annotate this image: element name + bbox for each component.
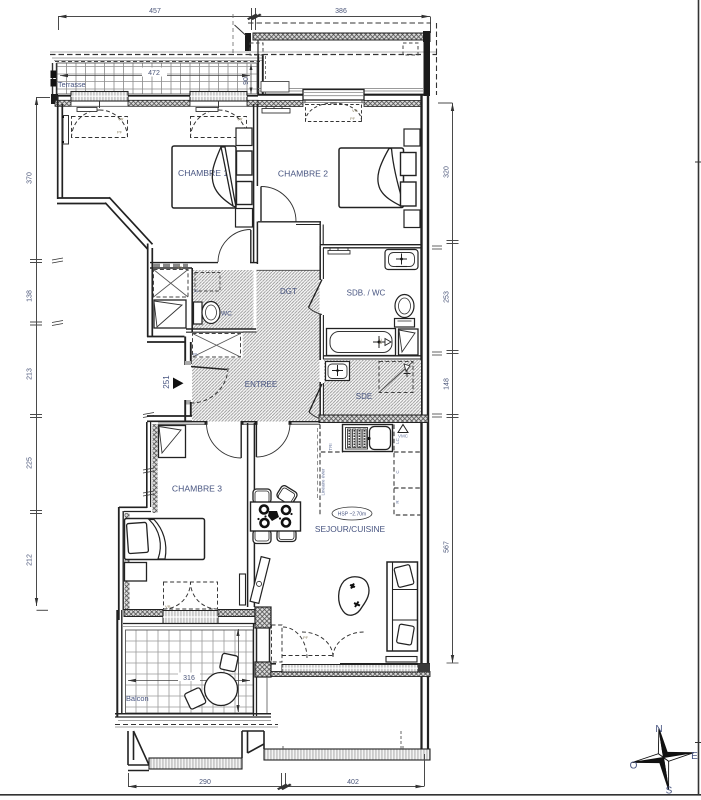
svg-text:386: 386 bbox=[335, 8, 347, 15]
svg-text:O: O bbox=[630, 761, 638, 772]
svg-text:VR: VR bbox=[118, 117, 124, 122]
svg-text:PF: PF bbox=[303, 635, 309, 640]
svg-text:VR: VR bbox=[237, 117, 243, 122]
svg-text:148: 148 bbox=[444, 378, 451, 390]
svg-text:EC: EC bbox=[378, 338, 383, 344]
svg-text:370: 370 bbox=[27, 172, 34, 184]
svg-text:253: 253 bbox=[444, 291, 451, 303]
svg-text:213: 213 bbox=[27, 368, 34, 380]
svg-text:S: S bbox=[666, 786, 673, 797]
svg-text:SDE: SDE bbox=[356, 392, 372, 401]
svg-text:567: 567 bbox=[444, 541, 451, 553]
svg-text:Balcon: Balcon bbox=[126, 694, 149, 703]
svg-text:251: 251 bbox=[162, 375, 171, 389]
svg-text:HSP ~2.70m: HSP ~2.70m bbox=[338, 512, 366, 518]
svg-text:320: 320 bbox=[444, 166, 451, 178]
svg-text:CHAMBRE 1: CHAMBRE 1 bbox=[178, 168, 228, 178]
svg-text:212: 212 bbox=[27, 554, 34, 566]
svg-text:DGT: DGT bbox=[280, 287, 297, 296]
svg-text:Terrasse: Terrasse bbox=[58, 80, 86, 89]
svg-text:Linéaire évier: Linéaire évier bbox=[321, 468, 326, 496]
svg-text:TRI: TRI bbox=[328, 443, 333, 450]
svg-text:E: E bbox=[691, 751, 698, 762]
svg-text:WC: WC bbox=[221, 311, 232, 318]
svg-text:N: N bbox=[655, 724, 662, 735]
svg-text:LL: LL bbox=[194, 288, 200, 293]
svg-text:PL: PL bbox=[193, 352, 199, 357]
svg-text:VR: VR bbox=[352, 108, 358, 113]
svg-text:PL: PL bbox=[178, 265, 184, 270]
svg-text:PF: PF bbox=[117, 130, 123, 135]
svg-text:CHAMBRE 3: CHAMBRE 3 bbox=[172, 484, 222, 494]
svg-text:ENTREE: ENTREE bbox=[245, 380, 277, 389]
svg-text:225: 225 bbox=[27, 457, 34, 469]
svg-text:457: 457 bbox=[149, 8, 161, 15]
svg-text:VR: VR bbox=[165, 604, 171, 609]
svg-text:316: 316 bbox=[183, 675, 195, 682]
svg-text:90: 90 bbox=[243, 77, 250, 85]
svg-text:SDB. / WC: SDB. / WC bbox=[347, 289, 386, 298]
svg-text:402: 402 bbox=[347, 779, 359, 786]
svg-text:CHAMBRE 2: CHAMBRE 2 bbox=[278, 169, 328, 179]
svg-text:290: 290 bbox=[199, 779, 211, 786]
svg-text:138: 138 bbox=[27, 290, 34, 302]
svg-text:472: 472 bbox=[148, 70, 160, 77]
svg-text:SEJOUR/CUISINE: SEJOUR/CUISINE bbox=[315, 524, 386, 534]
svg-text:VMC: VMC bbox=[398, 434, 409, 439]
svg-text:PF: PF bbox=[350, 116, 356, 121]
